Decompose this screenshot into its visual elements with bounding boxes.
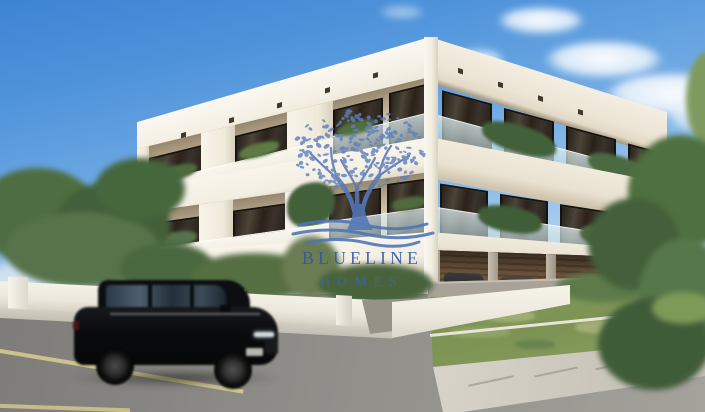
facade-vent	[538, 95, 543, 102]
facade-vent	[229, 117, 234, 123]
sidewalk-joint	[534, 366, 577, 377]
sidewalk-joint	[468, 375, 513, 387]
architectural-render-scene: BLUELINE HOMES	[0, 0, 705, 412]
tree	[95, 158, 185, 220]
facade-vent	[458, 68, 463, 75]
suv-headlight	[254, 332, 274, 337]
suv-taillight	[73, 321, 79, 330]
suv-grille	[265, 339, 278, 354]
suv-window-pillar	[148, 285, 152, 309]
suv-license-plate	[246, 348, 263, 356]
bush	[652, 292, 705, 324]
blueline-homes-watermark: BLUELINE HOMES	[287, 100, 437, 315]
cloud	[380, 6, 424, 19]
olive-tree-logo-icon	[287, 100, 437, 230]
black-suv	[70, 275, 285, 390]
facade-vent	[578, 109, 583, 116]
facade-vent	[373, 72, 378, 78]
waves-icon	[287, 218, 437, 252]
cloud	[545, 42, 663, 78]
suv-front-wheel	[214, 351, 252, 389]
suv-mirror	[220, 305, 231, 312]
wall-pillar	[8, 276, 28, 309]
suv-windows	[106, 285, 226, 309]
facade-vent	[498, 82, 503, 89]
watermark-brand-name: BLUELINE	[287, 248, 437, 269]
facade-vent	[325, 87, 330, 93]
suv-window-pillar	[190, 285, 194, 309]
lawn-patch	[515, 340, 555, 349]
cloud	[498, 8, 584, 34]
watermark-brand-subtitle: HOMES	[287, 275, 437, 291]
suv-beltline-chrome	[110, 313, 260, 315]
facade-vent	[277, 102, 282, 108]
tree-foliage	[294, 109, 426, 190]
suv-rear-wheel	[96, 347, 134, 385]
